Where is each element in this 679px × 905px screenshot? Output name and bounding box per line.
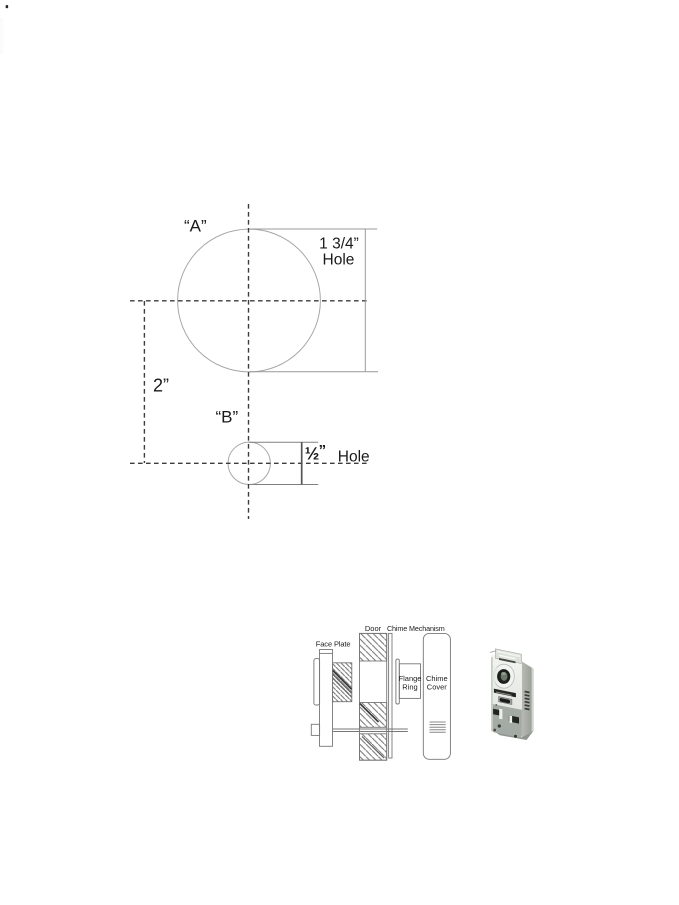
- svg-text:Chime Mechanism: Chime Mechanism: [387, 624, 445, 633]
- svg-text:½: ½: [305, 443, 320, 463]
- svg-text:Hole: Hole: [323, 252, 355, 269]
- svg-text:Door: Door: [365, 624, 382, 633]
- svg-text:1 3/4”: 1 3/4”: [319, 236, 359, 253]
- svg-text:Hole: Hole: [338, 449, 370, 466]
- svg-text:“B”: “B”: [216, 408, 239, 427]
- svg-text:“A”: “A”: [184, 217, 207, 236]
- svg-text:Ring: Ring: [402, 683, 417, 692]
- svg-text:Cover: Cover: [427, 683, 448, 692]
- svg-text:2”: 2”: [153, 376, 169, 396]
- svg-text:Face Plate: Face Plate: [316, 640, 351, 649]
- svg-text:”: ”: [319, 442, 327, 459]
